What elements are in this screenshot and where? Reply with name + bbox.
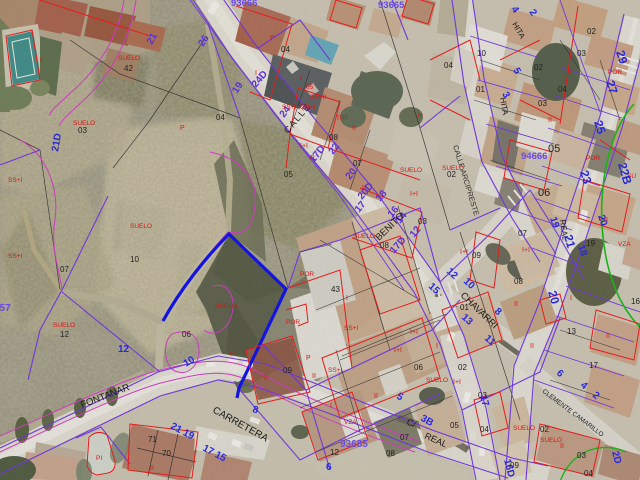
- svg-text:POR: POR: [586, 155, 600, 162]
- svg-text:SS+I: SS+I: [8, 253, 22, 260]
- svg-text:03: 03: [577, 49, 586, 58]
- svg-text:08: 08: [386, 449, 395, 458]
- svg-text:I+I: I+I: [410, 329, 418, 336]
- svg-text:VZA: VZA: [618, 241, 631, 248]
- svg-text:SUELO: SUELO: [130, 223, 152, 230]
- svg-text:SS+II: SS+II: [310, 94, 326, 101]
- svg-text:07: 07: [353, 159, 362, 168]
- svg-text:II: II: [374, 393, 378, 400]
- svg-text:08: 08: [514, 277, 523, 286]
- svg-text:I: I: [300, 75, 302, 82]
- svg-text:01: 01: [460, 303, 469, 312]
- svg-text:03: 03: [418, 217, 427, 226]
- svg-text:6: 6: [326, 462, 332, 473]
- svg-text:P: P: [230, 351, 235, 358]
- svg-text:03: 03: [78, 126, 87, 135]
- svg-text:43: 43: [331, 285, 340, 294]
- svg-text:I+I: I+I: [460, 249, 468, 256]
- svg-text:03: 03: [478, 391, 487, 400]
- svg-text:I+I: I+I: [300, 143, 308, 150]
- svg-text:SS+I: SS+I: [328, 367, 342, 374]
- svg-text:19: 19: [586, 239, 595, 248]
- svg-text:II: II: [514, 301, 518, 308]
- svg-text:04: 04: [216, 113, 225, 122]
- svg-text:09: 09: [283, 366, 292, 375]
- svg-text:SUELO: SUELO: [73, 120, 95, 127]
- svg-text:05: 05: [284, 170, 293, 179]
- svg-text:I: I: [570, 295, 572, 302]
- svg-text:II: II: [568, 69, 572, 76]
- svg-text:II: II: [560, 443, 564, 450]
- svg-text:TRF: TRF: [336, 115, 349, 122]
- svg-text:SUELO: SUELO: [215, 303, 237, 310]
- svg-text:SU: SU: [627, 173, 636, 180]
- svg-text:08: 08: [380, 241, 389, 250]
- svg-text:09: 09: [510, 461, 519, 470]
- svg-text:04: 04: [480, 425, 489, 434]
- svg-text:06: 06: [538, 187, 550, 199]
- svg-text:SUELO: SUELO: [118, 55, 140, 62]
- svg-text:POR: POR: [300, 271, 314, 278]
- svg-text:P: P: [180, 125, 185, 132]
- svg-text:12: 12: [60, 330, 69, 339]
- svg-text:SUELO: SUELO: [400, 167, 422, 174]
- svg-text:I+I: I+I: [522, 247, 530, 254]
- svg-text:SUELO: SUELO: [540, 437, 562, 444]
- svg-text:I: I: [330, 403, 332, 410]
- svg-text:II: II: [312, 373, 316, 380]
- svg-text:07: 07: [400, 433, 409, 442]
- svg-text:12: 12: [118, 344, 130, 355]
- svg-text:93665: 93665: [378, 0, 405, 11]
- svg-text:71: 71: [148, 435, 157, 444]
- svg-text:SS+I: SS+I: [8, 177, 22, 184]
- svg-text:II: II: [362, 185, 366, 192]
- svg-text:P: P: [310, 155, 315, 162]
- svg-text:10: 10: [130, 255, 139, 264]
- svg-text:II: II: [264, 375, 268, 382]
- svg-text:05: 05: [306, 84, 314, 91]
- svg-text:06: 06: [414, 363, 423, 372]
- svg-text:SUELO: SUELO: [53, 322, 75, 329]
- svg-text:P: P: [418, 113, 423, 120]
- svg-text:SUELO: SUELO: [353, 233, 375, 240]
- svg-text:93685: 93685: [340, 439, 368, 450]
- svg-text:09: 09: [472, 251, 481, 260]
- svg-text:I: I: [255, 70, 257, 77]
- svg-text:70: 70: [162, 449, 171, 458]
- svg-text:I: I: [436, 343, 438, 350]
- svg-text:P: P: [306, 355, 311, 362]
- svg-text:I: I: [40, 57, 42, 64]
- svg-text:PI: PI: [96, 455, 102, 462]
- svg-text:05: 05: [450, 421, 459, 430]
- svg-text:II: II: [150, 465, 154, 472]
- svg-text:42: 42: [124, 64, 133, 73]
- svg-text:I: I: [346, 295, 348, 302]
- svg-text:05: 05: [548, 143, 560, 155]
- svg-text:657: 657: [0, 303, 11, 314]
- svg-text:04: 04: [281, 45, 290, 54]
- svg-text:SS+II QR+I: SS+II QR+I: [282, 104, 315, 111]
- svg-text:II: II: [530, 343, 534, 350]
- svg-text:10: 10: [477, 49, 486, 58]
- svg-text:II: II: [352, 125, 356, 132]
- svg-text:16: 16: [631, 297, 640, 306]
- svg-text:I+I: I+I: [453, 379, 461, 386]
- svg-text:01: 01: [476, 85, 485, 94]
- svg-text:P: P: [270, 35, 275, 42]
- svg-text:03: 03: [538, 99, 547, 108]
- svg-text:SS+I: SS+I: [344, 325, 358, 332]
- svg-text:04: 04: [584, 469, 593, 478]
- svg-text:I+I: I+I: [600, 217, 608, 224]
- svg-text:17: 17: [589, 361, 598, 370]
- svg-text:08: 08: [329, 133, 338, 142]
- svg-text:02: 02: [540, 425, 549, 434]
- svg-text:SUELO: SUELO: [513, 425, 535, 432]
- svg-text:I+I: I+I: [410, 191, 418, 198]
- svg-text:12: 12: [330, 448, 339, 457]
- svg-text:POR: POR: [608, 69, 622, 76]
- svg-text:VZA: VZA: [344, 419, 357, 426]
- svg-text:02: 02: [587, 27, 596, 36]
- svg-text:II: II: [606, 333, 610, 340]
- svg-text:04: 04: [558, 85, 567, 94]
- svg-text:03: 03: [577, 451, 586, 460]
- svg-text:06: 06: [182, 330, 191, 339]
- svg-text:94666: 94666: [521, 151, 547, 162]
- svg-text:07: 07: [60, 265, 69, 274]
- svg-text:02: 02: [458, 363, 467, 372]
- svg-text:POR: POR: [286, 319, 300, 326]
- svg-text:93666: 93666: [231, 0, 257, 9]
- svg-text:07: 07: [518, 229, 527, 238]
- svg-text:04: 04: [444, 61, 453, 70]
- svg-text:SUELO: SUELO: [442, 165, 464, 172]
- svg-text:I+I: I+I: [394, 347, 402, 354]
- svg-text:13: 13: [567, 327, 576, 336]
- svg-text:SUELO: SUELO: [426, 377, 448, 384]
- svg-text:II: II: [548, 117, 552, 124]
- svg-text:02: 02: [534, 63, 543, 72]
